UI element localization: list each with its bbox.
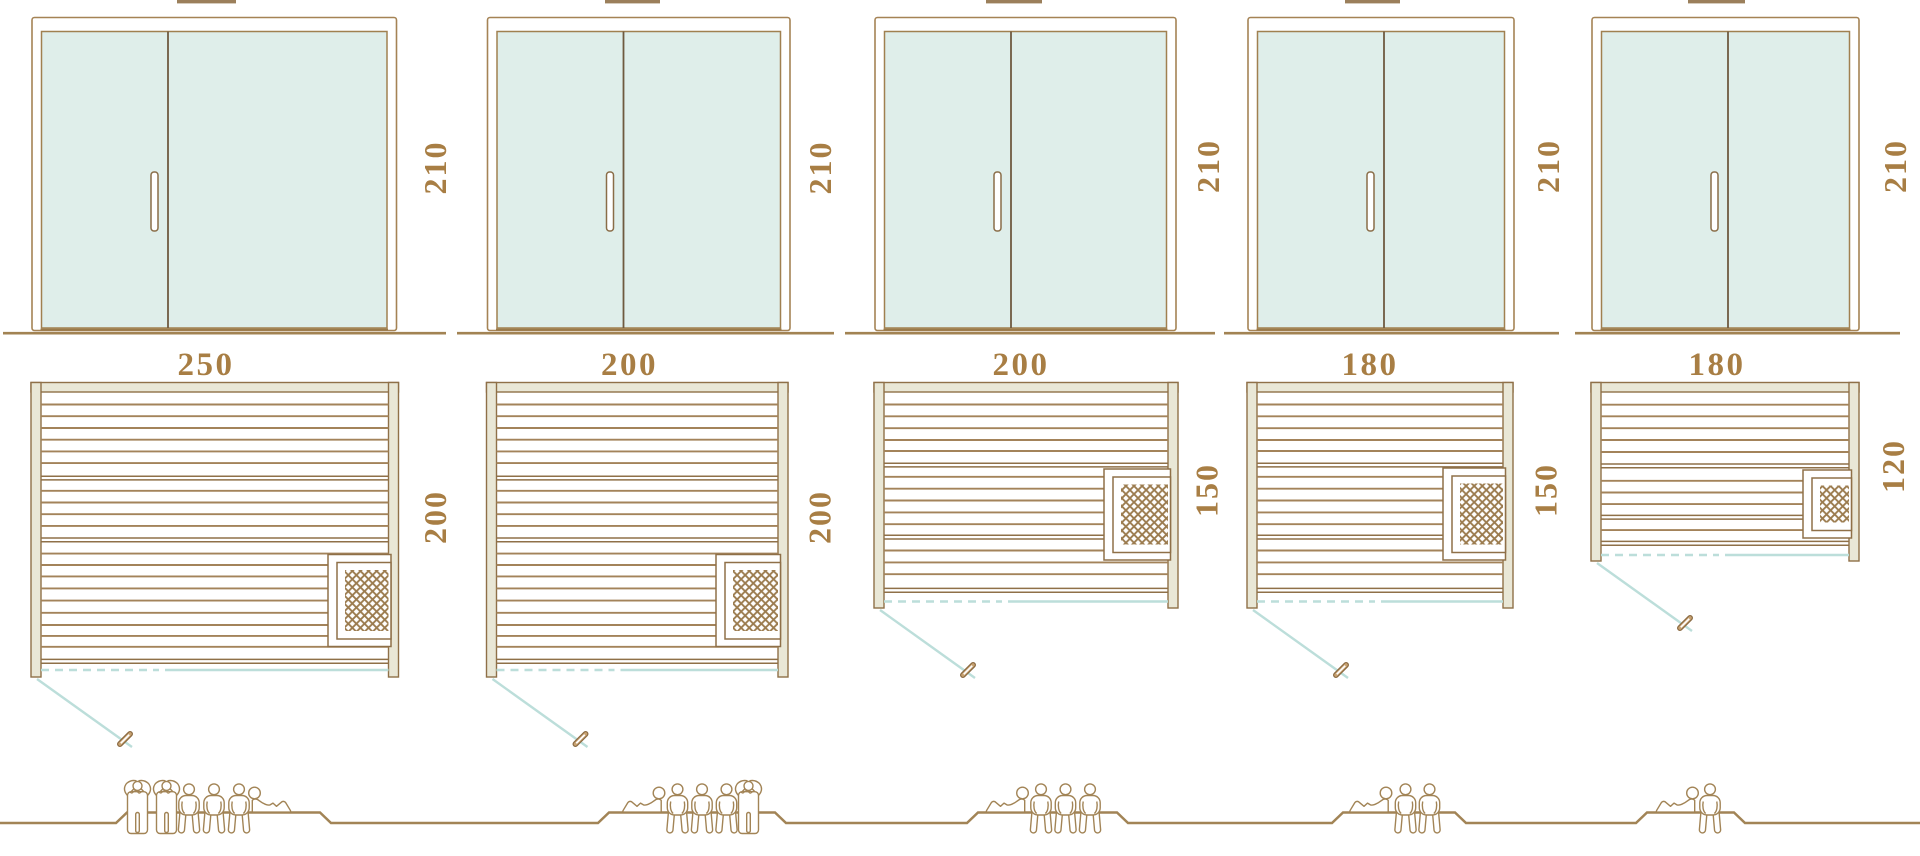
svg-text:210: 210 <box>1530 139 1566 193</box>
svg-text:200: 200 <box>601 347 658 383</box>
svg-text:200: 200 <box>417 490 453 544</box>
svg-text:200: 200 <box>993 347 1050 383</box>
svg-text:210: 210 <box>802 141 838 195</box>
svg-text:200: 200 <box>801 490 837 544</box>
svg-text:210: 210 <box>417 141 453 195</box>
svg-text:210: 210 <box>1190 139 1226 193</box>
svg-text:180: 180 <box>1342 347 1399 383</box>
svg-text:120: 120 <box>1875 439 1911 493</box>
svg-text:150: 150 <box>1188 463 1224 517</box>
svg-text:210: 210 <box>1877 139 1913 193</box>
svg-text:250: 250 <box>178 347 235 383</box>
svg-text:180: 180 <box>1689 347 1746 383</box>
svg-text:150: 150 <box>1527 463 1563 517</box>
